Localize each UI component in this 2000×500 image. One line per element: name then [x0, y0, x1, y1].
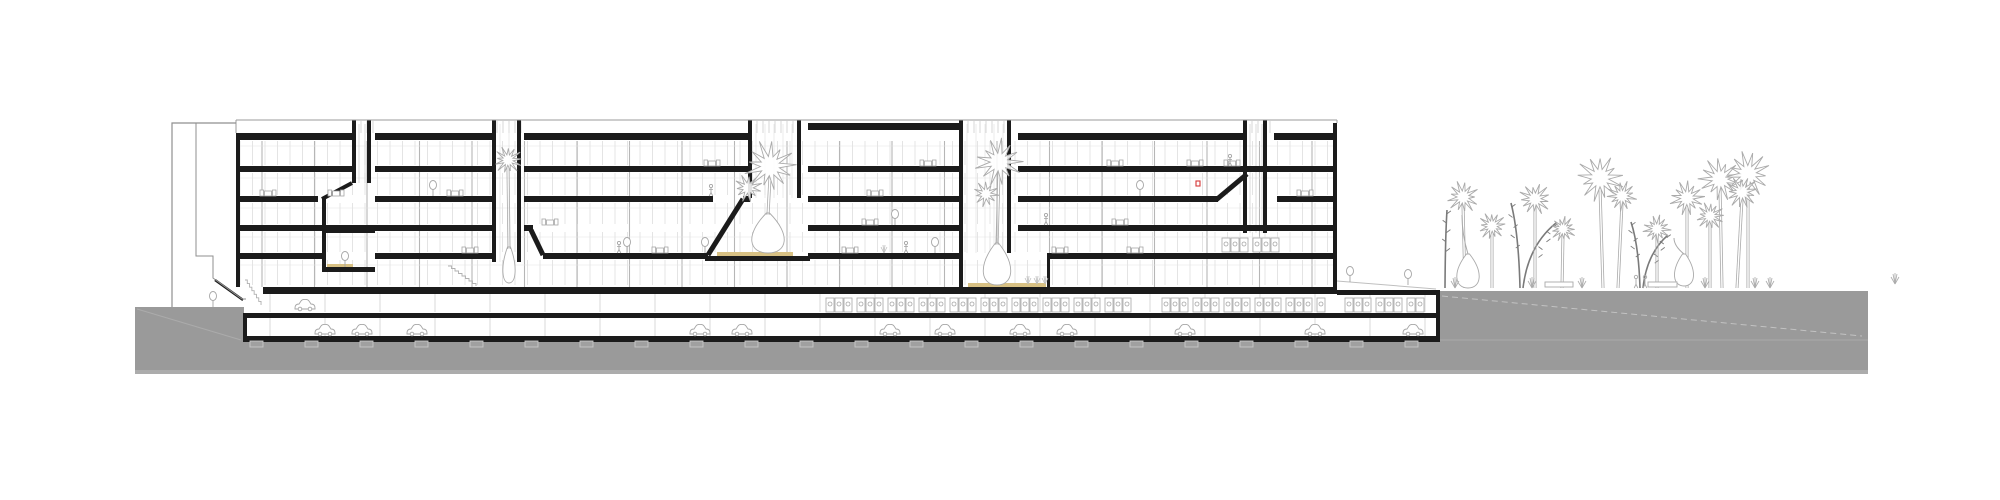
architectural-section-page	[0, 0, 2000, 500]
ground-layer	[135, 281, 1868, 374]
building-section-drawing	[0, 0, 2000, 500]
